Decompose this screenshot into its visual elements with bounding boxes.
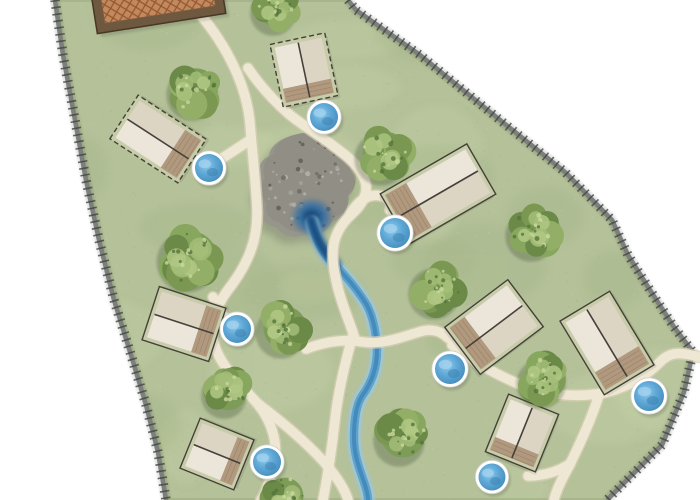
- site-plan: [0, 0, 700, 500]
- site-plan-svg: [0, 0, 700, 500]
- tree: [166, 66, 220, 121]
- grass-field: [29, 0, 700, 500]
- site-plan-map: [0, 0, 700, 500]
